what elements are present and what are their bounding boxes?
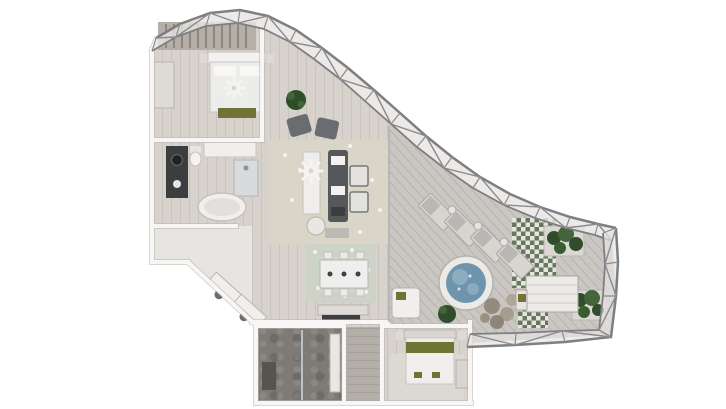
dining-table-set (320, 252, 368, 296)
walk-in-shower (234, 160, 258, 196)
bath-counter (204, 142, 256, 157)
media-console (325, 228, 349, 238)
outdoor-daybed (392, 288, 420, 318)
bedroom-dresser (154, 62, 174, 108)
plunge-pool (439, 256, 493, 310)
plan-overlay (0, 0, 726, 409)
terrace-plant-pot (438, 305, 456, 323)
bath-2-vanity (330, 334, 340, 392)
floor-plan-render (0, 0, 726, 409)
outdoor-dining-table (516, 276, 578, 312)
coffee-table (307, 217, 325, 235)
living-ceiling-fan (300, 160, 322, 182)
toilet (190, 146, 201, 166)
sectional-sofa (328, 150, 348, 222)
bathroom-2-fixtures (262, 330, 340, 400)
potted-plant-living (286, 90, 306, 110)
shower-bench (262, 362, 276, 390)
master-vanity (166, 146, 188, 198)
lounge-armchairs (286, 113, 340, 140)
guest-dresser (456, 360, 468, 388)
bedroom-ceiling-fan (224, 78, 244, 98)
freestanding-bathtub (198, 193, 246, 221)
